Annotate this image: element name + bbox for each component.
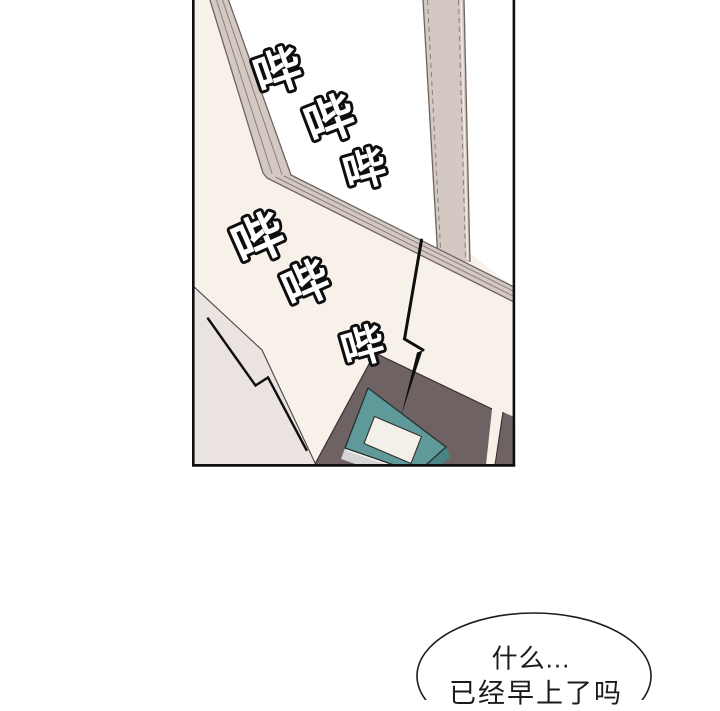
panel-art: 哔 哔 哔 哔 哔 哔 <box>0 0 720 700</box>
comic-page: 哔 哔 哔 哔 哔 哔 什么... 已经早上了吗 <box>0 0 720 700</box>
speech-bubble-line1: 什么... <box>492 639 571 676</box>
speech-bubble-line2: 已经早上了吗 <box>449 672 623 711</box>
